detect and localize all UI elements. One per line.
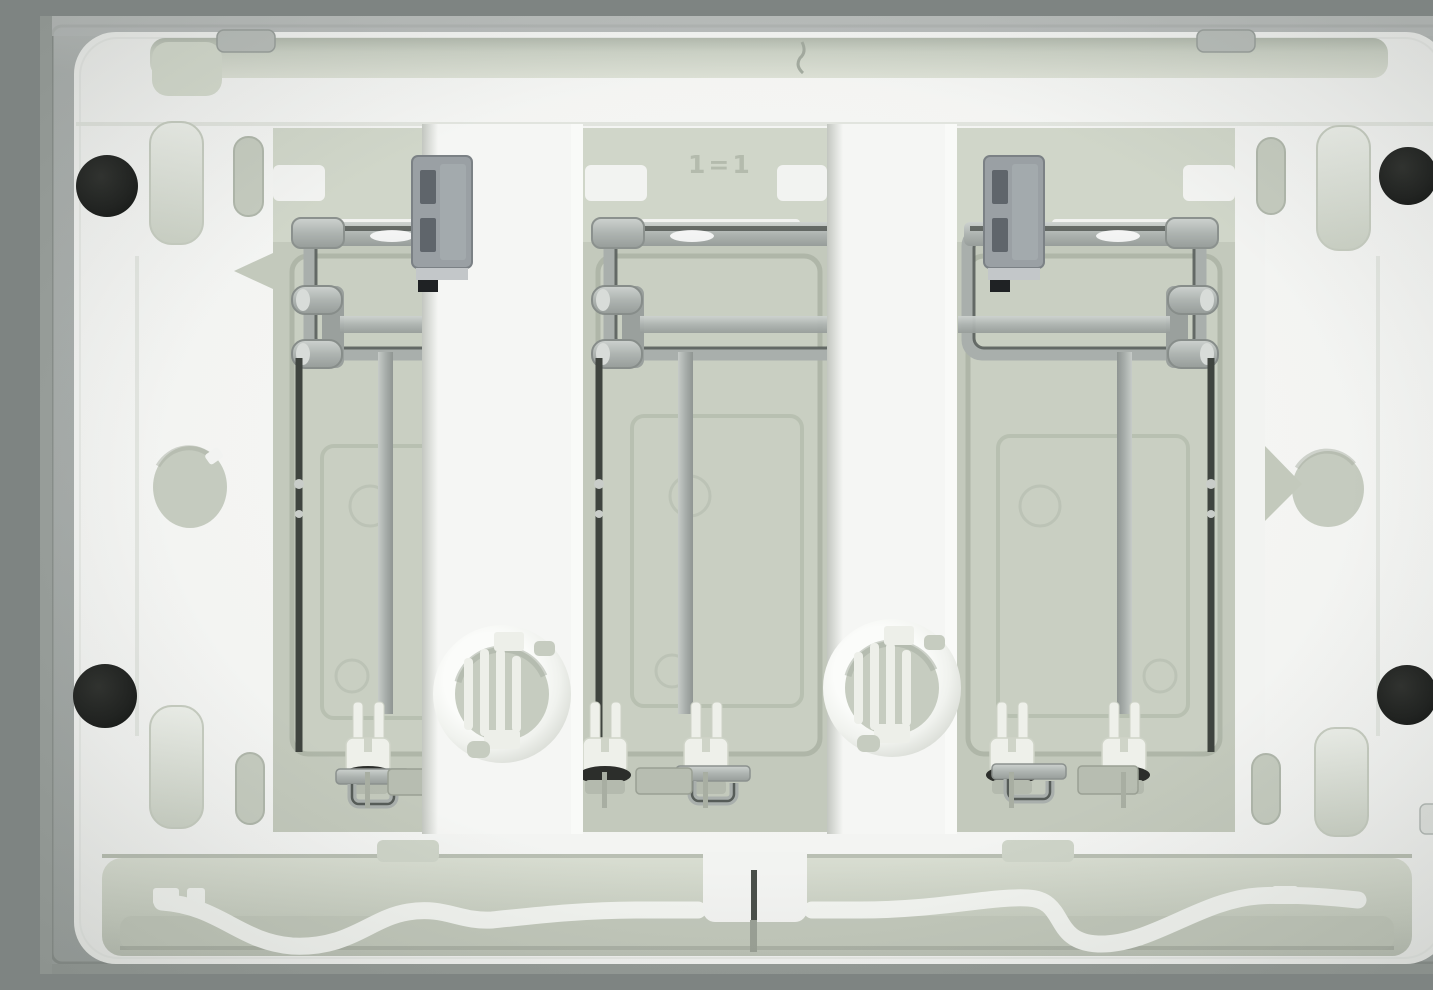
photo-vignette [40,16,1433,974]
product-photo-wall-plate-back: 1=1 [40,16,1433,974]
